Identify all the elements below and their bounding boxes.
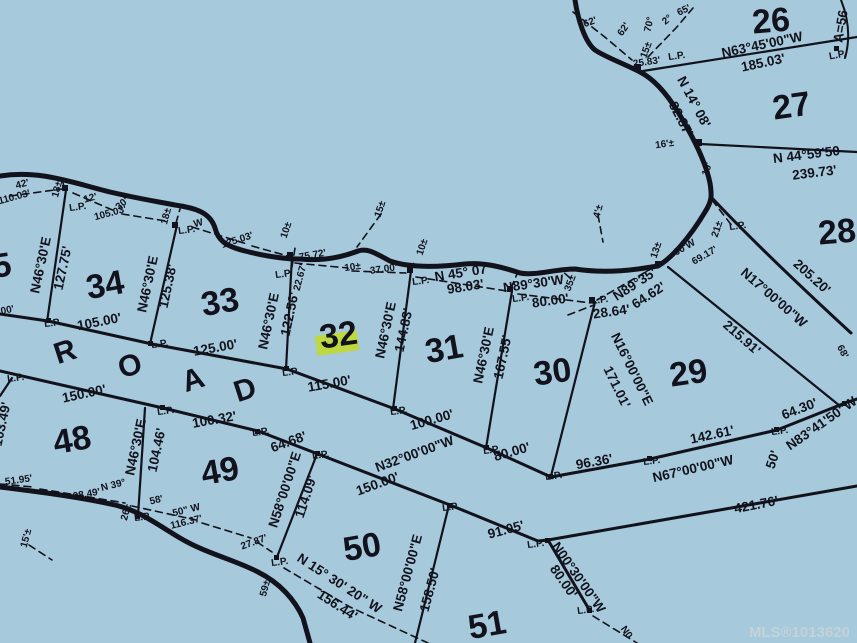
distance-label: 127.75': [51, 245, 75, 292]
distance-label: 100.32': [191, 408, 237, 431]
offset-label: 65': [675, 3, 692, 19]
offset-label: 21±: [710, 219, 726, 239]
distance-label: 125.38': [156, 263, 180, 310]
distance-label: 239.73': [791, 162, 837, 182]
distance-label: 64.30': [779, 395, 819, 422]
plat-map-canvas: 26 27 28 29 30 31 32 33 34 35 48 49 50 5…: [0, 0, 857, 643]
lot-number-50: 50: [340, 525, 384, 569]
offset-label: 59±: [258, 578, 273, 597]
bearing-label: N46°30'E: [27, 235, 54, 294]
lp-marker-label: L.P.: [667, 50, 686, 63]
lot-number-48: 48: [50, 418, 94, 462]
offset-label: 70°: [643, 16, 657, 33]
mls-watermark: MLS®1013620: [749, 624, 850, 641]
lp-marker-label: L.P.: [156, 405, 175, 418]
offset-label: 18±: [159, 206, 174, 225]
distance-label: 215.91': [720, 317, 763, 358]
lp-marker-label: L.P.: [642, 455, 661, 468]
offset-label: 10±: [344, 261, 362, 274]
distance-label: 22.67': [292, 263, 310, 292]
lot-number-30: 30: [531, 351, 574, 394]
bearing-label: N 39°: [100, 477, 127, 494]
lot-number-51: 51: [465, 603, 509, 643]
distance-label: 105.00': [76, 310, 123, 333]
lp-marker-label: L.P.: [526, 538, 545, 551]
road-letter-d: D: [230, 371, 261, 409]
lot-number-27: 27: [770, 85, 813, 128]
distance-label: 114.09': [292, 473, 320, 519]
bearing-label: N46°30'E: [255, 291, 282, 350]
lp-marker-label: L.P.: [828, 49, 847, 63]
distance-label: 25.83': [632, 55, 661, 70]
lp-marker-label: L.P.: [770, 425, 789, 438]
bearing-label: 58': [149, 494, 165, 508]
lp-marker-label: L.P.: [150, 338, 169, 351]
lp-marker-label: L.P.: [511, 292, 530, 305]
offset-label: 15'±: [19, 527, 35, 549]
bearing-label: W: [192, 217, 205, 230]
distance-label: 103.49': [0, 401, 14, 448]
lp-marker-label: L.P.: [411, 275, 430, 288]
lp-marker-label: L.P.: [544, 470, 563, 483]
lp-marker-label: L.P.: [251, 426, 270, 439]
lot-number-33: 33: [198, 280, 242, 324]
offset-label: 2°: [660, 13, 674, 28]
lot-number-31: 31: [422, 327, 466, 371]
lot-number-49: 49: [198, 449, 242, 493]
road-width-label: 50': [763, 449, 783, 471]
distance-label: 51.95': [4, 473, 33, 488]
distance-label: 68': [834, 343, 850, 360]
bearing-label: N0: [618, 624, 635, 641]
lp-marker-label: L.P.: [576, 604, 595, 617]
offset-label: 4'±: [592, 203, 606, 219]
offset-label: 62': [616, 21, 633, 38]
distance-label: 421.76': [733, 493, 780, 516]
offset-label: 10±: [279, 220, 295, 240]
lp-marker-label: L.P.: [441, 501, 460, 514]
distance-label: 205.20': [790, 256, 833, 297]
lp-marker-label: L.P.: [43, 317, 62, 330]
bearing-label: N32°00'00"W: [373, 433, 456, 475]
road-letter-o: O: [114, 347, 146, 386]
shoreline-top: [0, 0, 711, 274]
distance-label: 100.00': [408, 406, 455, 433]
lp-marker-label: L.P.: [6, 372, 25, 385]
lot-number-29: 29: [667, 352, 710, 395]
shoreline-bottom: [0, 487, 310, 643]
offset-label: 18±: [50, 179, 65, 198]
offset-label: 16'±: [654, 138, 675, 152]
lot-number-34: 34: [83, 263, 127, 307]
distance-label: 80.00': [531, 291, 570, 311]
distance-label: 110.03': [0, 188, 31, 207]
offset-label: 10±: [415, 237, 431, 257]
offset-label: 15±: [373, 199, 389, 219]
distance-label: 104.46': [145, 427, 169, 474]
plat-map: 26 27 28 29 30 31 32 33 34 35 48 49 50 5…: [0, 0, 857, 643]
distance-label: 158.50': [417, 566, 443, 613]
lot-number-35: 35: [0, 246, 14, 289]
road-letter-a: A: [178, 361, 209, 399]
lp-marker-label: L.P.: [270, 556, 289, 569]
distance-label: 37.00': [369, 262, 398, 277]
lp-marker-label: L.P.: [281, 366, 300, 379]
lp-marker-label: L.P.: [133, 511, 152, 524]
offset-label: 13±: [649, 240, 665, 260]
lot-number-28: 28: [817, 211, 857, 252]
lp-marker-label: L.P.: [311, 449, 330, 462]
distance-label: 142.61': [689, 423, 736, 447]
road-letter-r: R: [50, 333, 81, 371]
offset-label: 35±: [563, 273, 579, 293]
distance-label: 96.36': [575, 451, 614, 472]
lp-marker-label: L.P.: [389, 405, 408, 418]
lot-number-32: 32: [317, 314, 360, 357]
offset-label: 62': [582, 15, 598, 30]
